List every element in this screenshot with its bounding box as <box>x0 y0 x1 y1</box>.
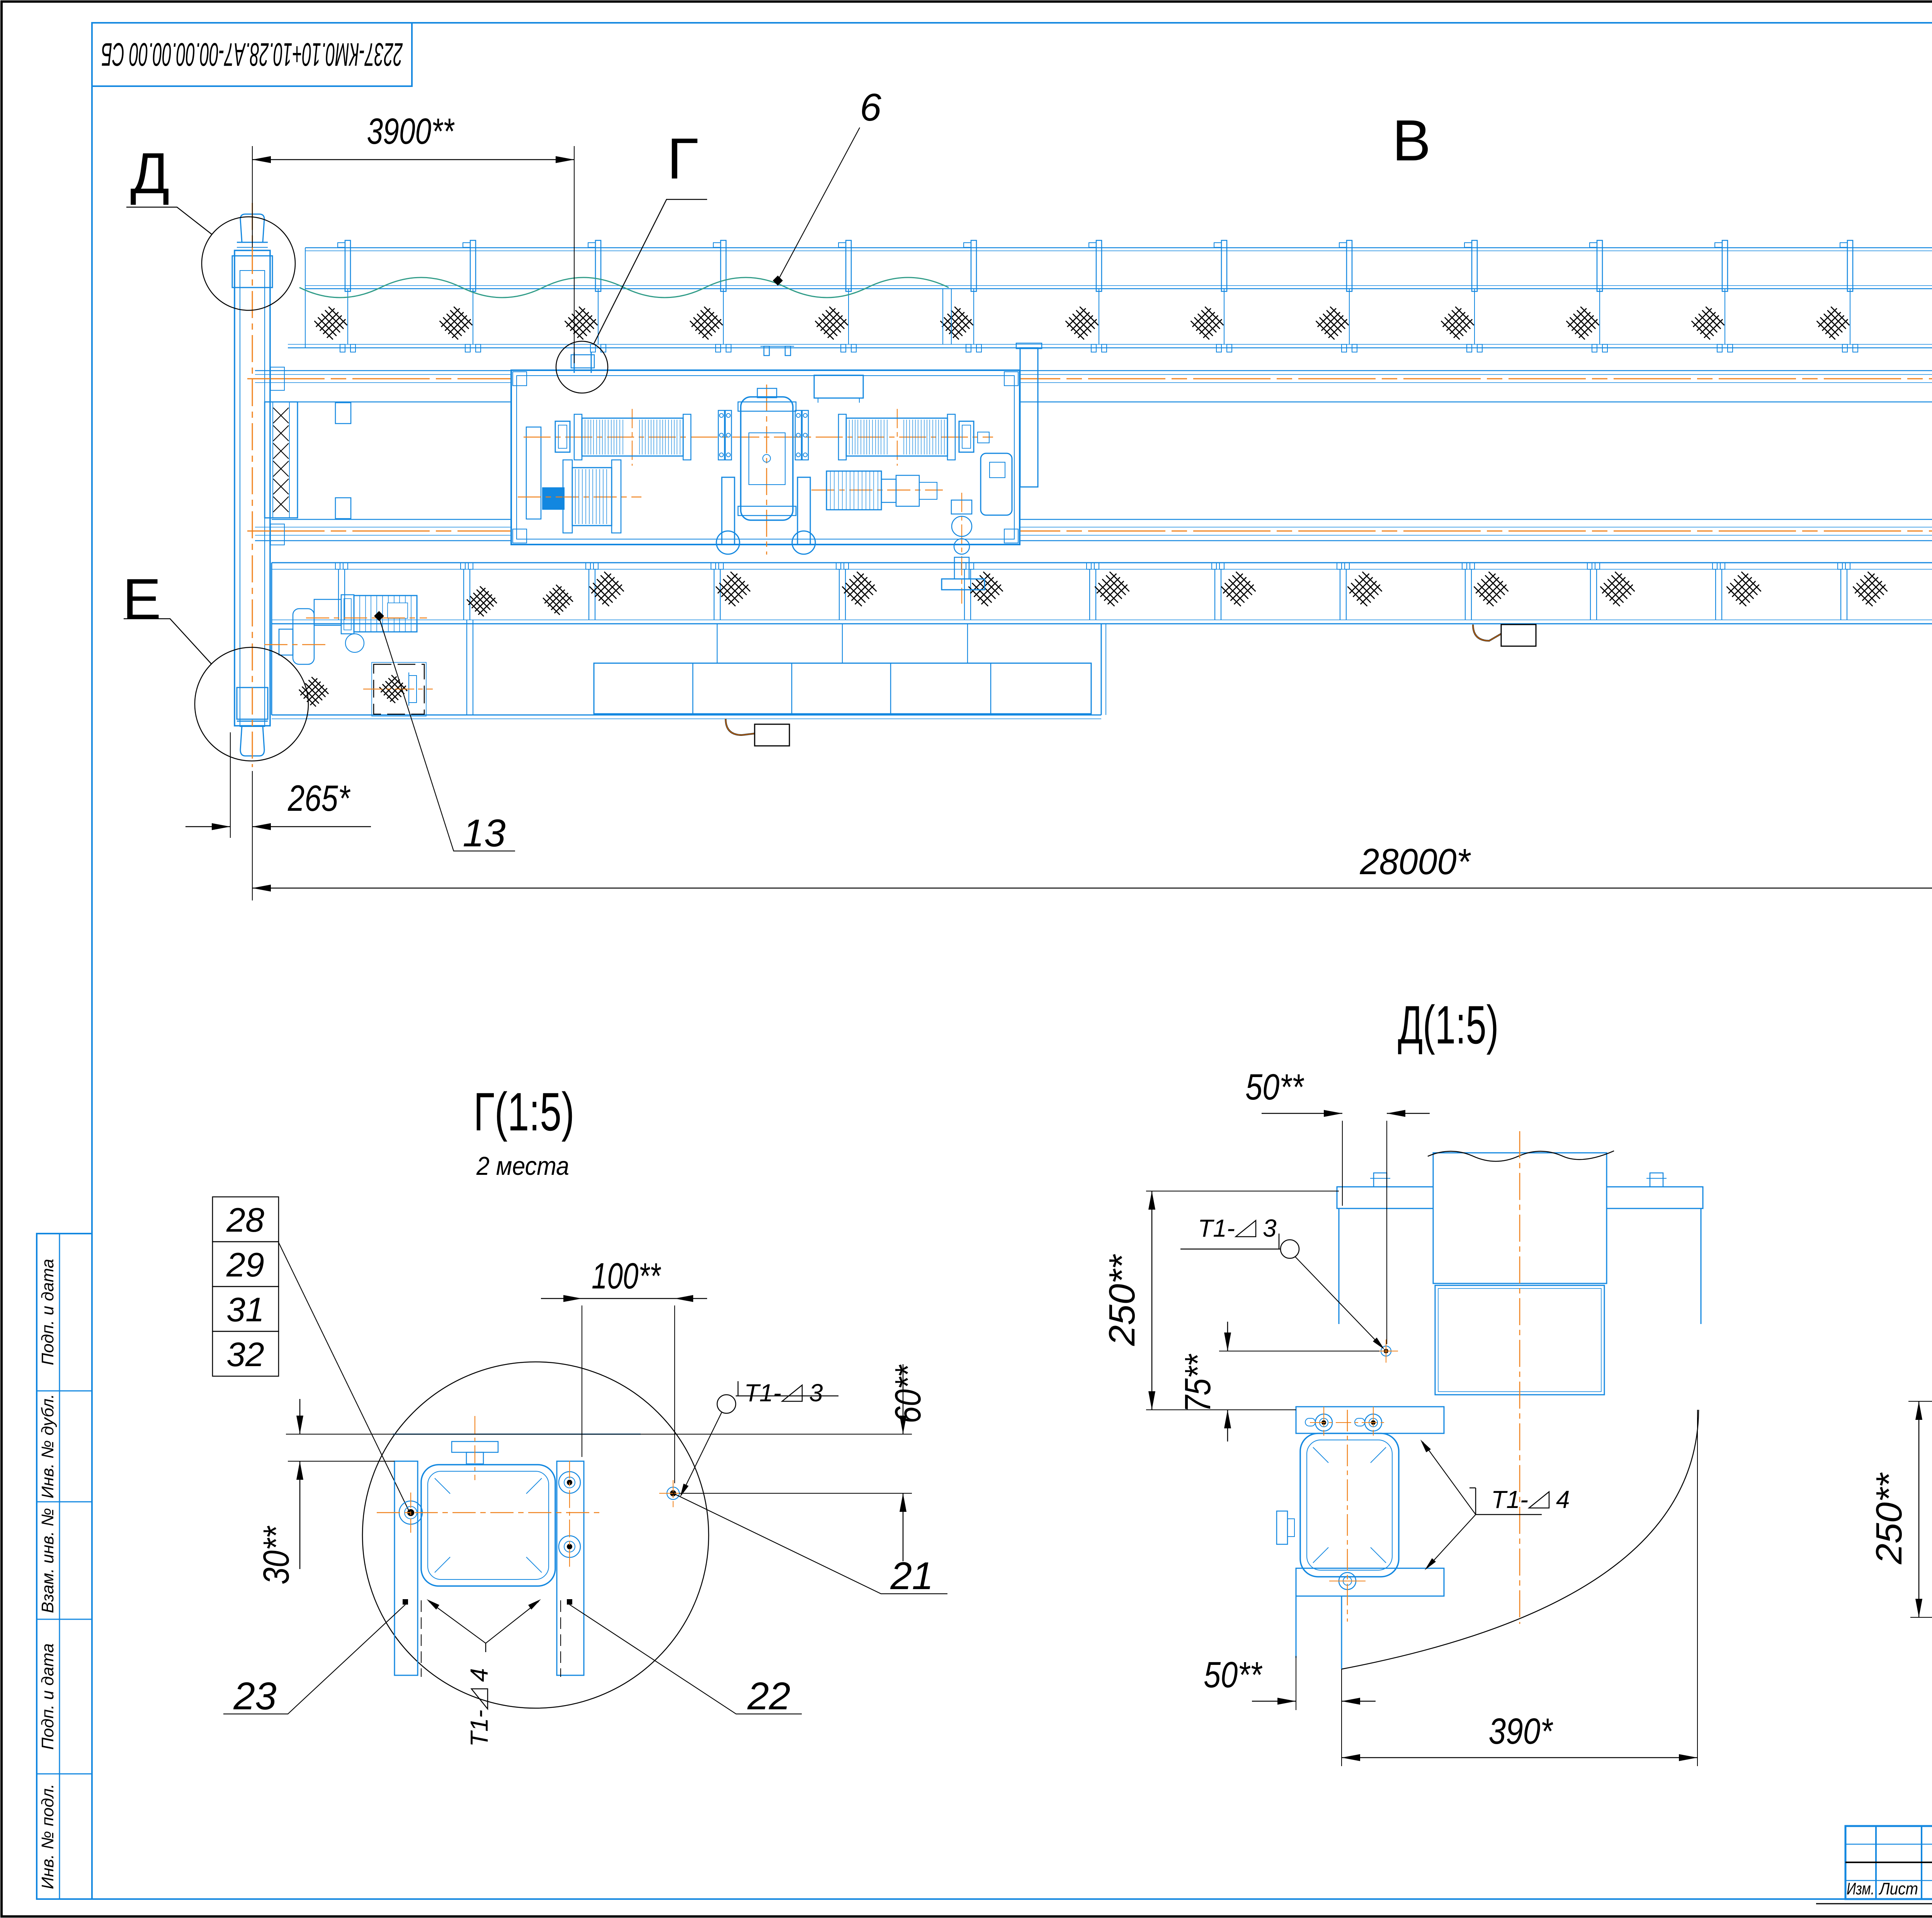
svg-text:2 места: 2 места <box>476 1152 569 1181</box>
svg-text:Т1-: Т1- <box>1491 1486 1528 1513</box>
svg-text:В: В <box>1392 108 1431 173</box>
svg-text:Подп. и дата: Подп. и дата <box>38 1643 57 1750</box>
svg-text:30**: 30** <box>256 1525 297 1584</box>
svg-text:Г: Г <box>667 126 698 191</box>
svg-text:4: 4 <box>465 1668 493 1682</box>
svg-text:13: 13 <box>463 812 505 855</box>
svg-text:28: 28 <box>226 1201 264 1239</box>
svg-text:250**: 250** <box>1102 1254 1143 1346</box>
svg-text:Д(1:5): Д(1:5) <box>1398 994 1499 1055</box>
svg-text:Т1-: Т1- <box>1198 1214 1235 1242</box>
svg-text:Е: Е <box>122 567 161 631</box>
svg-text:Инв. № дубл.: Инв. № дубл. <box>38 1394 57 1499</box>
svg-text:2237-КМ0.10+10.28.А7-00.00.00.: 2237-КМ0.10+10.28.А7-00.00.00.00 СБ <box>101 36 403 73</box>
svg-text:Г(1:5): Г(1:5) <box>474 1081 575 1142</box>
svg-text:Т1-: Т1- <box>465 1710 493 1747</box>
svg-text:50**: 50** <box>1245 1067 1304 1108</box>
svg-text:28000*: 28000* <box>1360 841 1471 882</box>
svg-text:23: 23 <box>233 1675 276 1718</box>
svg-text:250**: 250** <box>1869 1472 1910 1564</box>
svg-text:Изм.: Изм. <box>1847 1879 1874 1898</box>
svg-text:390*: 390* <box>1489 1711 1554 1752</box>
svg-text:3: 3 <box>1263 1214 1277 1242</box>
svg-text:Инв. № подл.: Инв. № подл. <box>38 1784 57 1889</box>
svg-text:265*: 265* <box>287 778 350 819</box>
svg-text:3900**: 3900** <box>367 111 455 152</box>
svg-text:31: 31 <box>226 1290 264 1329</box>
svg-text:32: 32 <box>226 1335 264 1373</box>
svg-text:50**: 50** <box>1204 1654 1263 1695</box>
svg-text:22: 22 <box>747 1675 790 1718</box>
svg-text:29: 29 <box>226 1246 264 1284</box>
svg-text:6: 6 <box>860 86 881 129</box>
svg-text:Взам. инв. №: Взам. инв. № <box>38 1508 57 1613</box>
svg-text:4: 4 <box>1556 1486 1570 1513</box>
svg-text:3: 3 <box>809 1379 823 1407</box>
svg-text:Подп. и дата: Подп. и дата <box>38 1259 57 1365</box>
svg-text:60**: 60** <box>888 1364 929 1423</box>
svg-text:Лист: Лист <box>1878 1879 1918 1898</box>
svg-text:Т1-: Т1- <box>744 1379 781 1407</box>
svg-text:100**: 100** <box>592 1256 661 1297</box>
svg-text:21: 21 <box>890 1554 933 1598</box>
svg-text:Д: Д <box>130 141 170 206</box>
svg-text:75**: 75** <box>1177 1353 1218 1413</box>
